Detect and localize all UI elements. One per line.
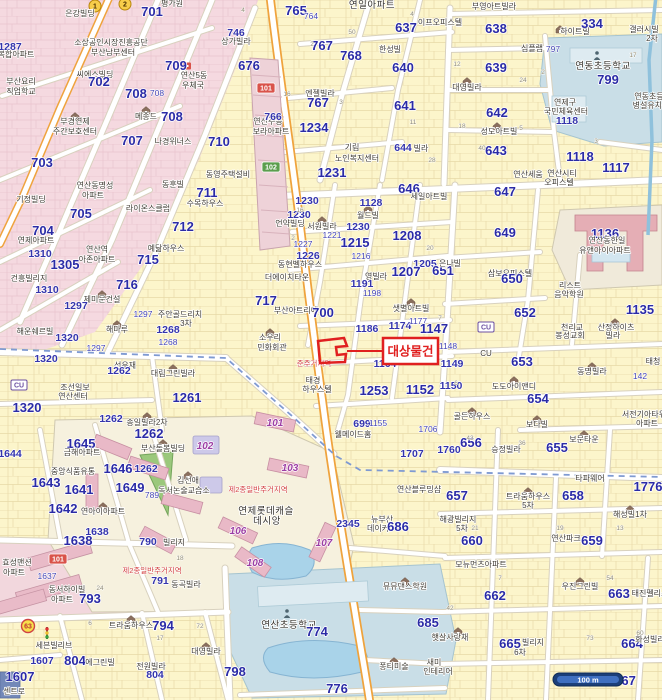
map-label: 5차 [456, 524, 468, 533]
map-label: 652 [514, 305, 536, 320]
map-label: 샛별아트빌 [393, 303, 430, 313]
map-label: 101 [267, 418, 284, 429]
map-label: 3 [339, 99, 343, 106]
map-label: 663 [608, 586, 630, 601]
map-label: 1261 [173, 390, 202, 405]
map-label: 연산동명성 [77, 180, 114, 190]
map-label: 직업학교 [6, 86, 35, 96]
map-label: 하우스텔 [302, 384, 331, 394]
map-label: 647 [494, 184, 516, 199]
map-label: 기정빌딩 [16, 194, 45, 204]
map-label: 36 [518, 440, 526, 447]
map-label: 700 [312, 305, 334, 320]
map-label: 평가원 [161, 0, 183, 8]
map-label: 부산남부센터 [91, 47, 135, 57]
map-label: 43 [466, 435, 474, 442]
map-label: 1637 [38, 571, 57, 581]
map-label: 142 [633, 371, 647, 381]
map-label: 1642 [49, 501, 78, 516]
map-label: 인테리어 [423, 666, 452, 676]
map-label: 1149 [441, 358, 464, 370]
map-label: 수목하우스 [187, 198, 224, 208]
map-label: 60 [636, 630, 644, 637]
map-label: 1320 [55, 332, 79, 344]
svg-text:101: 101 [260, 86, 272, 93]
map-label: 18 [176, 555, 184, 562]
map-label: 타파웨어 [575, 473, 604, 483]
map-label: 연제구 [554, 98, 576, 107]
map-label: 707 [121, 133, 143, 148]
map-label: 연동초등학교 [575, 61, 630, 72]
map-label: 686 [387, 519, 409, 534]
map-label: 1646 [104, 461, 133, 476]
map-label: 715 [137, 252, 159, 267]
map-label: 더에이치타운 [265, 272, 309, 282]
map-label: 태경 [306, 375, 321, 385]
map-label: 1227 [294, 239, 313, 249]
map-label: 동영주택설비 [206, 169, 250, 179]
map-label: 데이커 [367, 523, 389, 533]
map-label: 794 [152, 618, 174, 633]
map-label: 퐁티미술 [379, 661, 408, 671]
map-label: 12 [453, 61, 461, 68]
map-label: 빌라 [606, 330, 621, 340]
map-label: 644 [394, 142, 412, 154]
map-label: 웰메이드홈 [335, 429, 372, 439]
map-label: 17 [156, 635, 164, 642]
map-label: 641 [394, 98, 416, 113]
map-label: 804 [146, 669, 164, 681]
map-label: 보다빌 [526, 419, 548, 429]
map-label: 20 [426, 245, 434, 252]
map-label: 5차 [522, 501, 534, 510]
map-label: 심플랩 [521, 43, 543, 53]
map-label: 빌리지 [163, 537, 185, 547]
map-label: 보라아파트 [253, 126, 290, 136]
map-label: 1152 [406, 382, 434, 397]
map-label: 1268 [159, 337, 178, 347]
map-label: 제2종일반주거지역 [228, 484, 287, 494]
map-label: 건흥빌리지 [11, 273, 48, 283]
map-label: 보문타운 [569, 435, 598, 444]
map-label: 태진펠리스 [632, 588, 662, 598]
map-label: 1297 [134, 309, 153, 319]
map-label: 우체국 [182, 80, 204, 90]
map-label: 1649 [116, 480, 145, 495]
map-label: 1128 [360, 197, 383, 209]
map-label: 트라움하우스 [506, 491, 550, 501]
map-label: 한성빌 [379, 44, 401, 54]
map-label: 108 [247, 558, 264, 569]
map-label: 774 [306, 624, 328, 639]
map-label: 4 [241, 7, 245, 14]
map-label: 708 [150, 88, 164, 98]
map-viewport[interactable]: 1210110210163CUCU 은강빌딩평가원7011287복합아파트소상공… [0, 0, 662, 700]
map-label: 662 [484, 588, 506, 603]
map-label: 연동초등 [634, 92, 662, 101]
map-label: 리스트 [559, 281, 581, 290]
map-label: 11 [410, 119, 417, 126]
map-label: 메종드 [135, 112, 157, 121]
map-label: 모뉴먼츠아파트 [455, 559, 507, 569]
map-label: 새미 [427, 658, 442, 667]
map-label: 해광빌리지 [440, 514, 477, 524]
map-label: 연산센터 [58, 391, 87, 401]
map-label: 1155 [369, 418, 388, 428]
map-label: 6 [88, 620, 92, 627]
map-label: 7 [498, 575, 502, 582]
map-label: 650 [501, 271, 523, 286]
map-label: 트라움하우스 [109, 620, 153, 630]
annotation-label: 대상물건 [387, 344, 433, 359]
map-label: 연산세움 [513, 169, 542, 179]
svg-text:2: 2 [123, 2, 127, 9]
map-label: 790 [139, 536, 157, 548]
map-label: 은나빌 [439, 258, 461, 268]
map-label: 1262 [135, 426, 164, 441]
map-label: 1230 [346, 221, 370, 233]
map-label: 1776 [634, 479, 662, 494]
map-label: 18 [458, 123, 466, 130]
map-label: 5 [519, 125, 523, 132]
map-label: 1230 [295, 195, 319, 207]
map-label: 106 [230, 526, 247, 537]
map-label: 712 [172, 219, 194, 234]
map-label: 702 [88, 74, 110, 89]
map-label: 102 [197, 441, 214, 452]
map-label: 1118 [566, 149, 594, 164]
map-label: 데시앙 [253, 515, 281, 527]
map-label: 1760 [437, 444, 461, 456]
map-label: 107 [316, 538, 333, 549]
map-label: 2 [291, 235, 295, 242]
map-label: 2차 [646, 34, 658, 43]
map-label: 음악학원 [554, 289, 583, 299]
map-label: 부산돌봄빌딩 [141, 443, 185, 453]
map-label: 658 [562, 488, 584, 503]
map-label: 705 [70, 206, 92, 221]
map-label: 주간보호센터 [53, 126, 97, 136]
map-label: 아파트 [3, 567, 25, 577]
map-label: 685 [417, 615, 439, 630]
map-label: 상가빌라 [221, 36, 251, 46]
map-label: 1186 [356, 323, 379, 335]
map-label: 13 [616, 525, 624, 532]
map-label: 1706 [419, 424, 438, 434]
map-label: 월드빌 [357, 210, 379, 220]
map-label: 797 [546, 44, 560, 54]
map-label: 동곡빌라 [171, 579, 201, 589]
map-label: 햇살사랑채 [432, 632, 469, 642]
map-label: 세일아트빌 [411, 191, 448, 201]
svg-text:102: 102 [265, 165, 277, 172]
map-label: 노인복지센터 [335, 153, 379, 163]
map-label: 2 [310, 41, 314, 48]
map-label: 1253 [360, 383, 389, 398]
map-label: 제미문건설 [84, 294, 121, 304]
map-label: 은강빌딩 [65, 8, 94, 18]
map-label: 28 [428, 157, 436, 164]
map-label: 6차 [514, 648, 526, 657]
badge-101: 101 [49, 554, 67, 564]
map-label: 24 [96, 585, 104, 592]
map-label: 도도아이앤디 [492, 381, 536, 391]
map-label: 776 [326, 681, 348, 696]
svg-text:63: 63 [24, 624, 32, 631]
map-label: 1148 [439, 341, 458, 351]
map-label: 638 [485, 21, 507, 36]
map-label: 1320 [13, 400, 42, 415]
map-label: 아파트 [636, 418, 658, 428]
map-label: 708 [161, 109, 183, 124]
map-label: 오피스텔 [544, 178, 573, 187]
map-label: 1297 [64, 300, 88, 312]
map-label: 1641 [65, 482, 94, 497]
scale-bar: 100 m [553, 673, 623, 686]
map-label: 해마루 [106, 324, 128, 334]
map-label: 독서논술교습소 [158, 485, 210, 495]
map-label: 연산동한일 [589, 235, 626, 245]
map-label: 767 [311, 38, 333, 53]
map-label: 1297 [87, 343, 106, 353]
map-label: 73 [586, 635, 594, 642]
map-label: 뮤뮤댄스학원 [383, 581, 427, 591]
map-label: 103 [282, 463, 299, 474]
map-label: 부산요리 [6, 76, 35, 86]
map-label: 708 [125, 86, 147, 101]
map-label: 1150 [440, 380, 463, 392]
map-label: 72 [196, 623, 204, 630]
map-label: 1607 [6, 669, 35, 684]
map-label: 센트로 [3, 686, 25, 696]
map-label: 1607 [30, 655, 54, 667]
map-label: 16 [296, 207, 304, 214]
map-label: 1268 [156, 324, 180, 336]
map-label: 동명빌라 [577, 366, 607, 376]
map-label: 대영빌라 [191, 646, 221, 656]
map-label: 767 [307, 95, 329, 110]
map-label: 병설유치원 [633, 100, 662, 110]
map-label: 에그린빌 [85, 657, 114, 667]
map-label: 21 [471, 525, 479, 532]
map-label: 16 [283, 91, 291, 98]
map-label: 금해아파트 [64, 447, 101, 457]
map-label: 1147 [420, 321, 448, 336]
map-label: 1643 [32, 475, 61, 490]
map-label: 조선일보 [60, 383, 89, 392]
map-label: 791 [151, 575, 169, 587]
map-canvas[interactable]: 1210110210163CUCU 은강빌딩평가원7011287복합아파트소상공… [0, 0, 662, 700]
map-label: 804 [64, 653, 86, 668]
map-label: 승정빌라 [491, 444, 521, 454]
map-label: 김선애 [177, 475, 199, 485]
map-label: 1644 [0, 448, 22, 460]
map-label: 소상공인시장진흥공단 [74, 37, 148, 47]
map-label: 6 [454, 380, 458, 387]
map-label: 793 [79, 591, 101, 606]
map-label: 1262 [107, 365, 131, 377]
map-label: 7 [438, 315, 442, 322]
map-label: 1117 [602, 160, 630, 175]
map-label: 태청 [646, 357, 661, 366]
map-label: 660 [461, 533, 483, 548]
map-label: 부영아트빌라 [472, 1, 517, 11]
map-label: 653 [511, 354, 533, 369]
traffic-light-icon [45, 627, 48, 639]
map-label: 연아이아파트 [81, 506, 125, 516]
map-label: 우진그린빌 [562, 581, 599, 591]
map-label: 4 [410, 11, 414, 18]
badge-63: 63 [22, 620, 35, 633]
map-label: 643 [485, 143, 507, 158]
map-label: 연산파크 [551, 533, 580, 543]
map-label: 1310 [28, 248, 52, 260]
svg-text:101: 101 [52, 557, 64, 564]
map-label: 657 [446, 488, 468, 503]
map-label: 유앤아이아파트 [579, 245, 631, 255]
map-label: 3 [594, 138, 598, 145]
map-label: 봉성교회 [555, 331, 584, 340]
map-label: 2 [541, 69, 545, 76]
map-label: 동훈빌 [162, 179, 184, 189]
map-label: 이프오피스텔 [418, 17, 462, 27]
map-label: 1305 [51, 257, 80, 272]
map-label: 716 [116, 277, 138, 292]
map-label: 복합아파트 [0, 49, 34, 59]
map-label: 아파트 [82, 190, 104, 200]
map-label: 해성빌1차 [613, 509, 648, 519]
map-label: 701 [141, 4, 163, 19]
map-label: 640 [392, 60, 414, 75]
map-label: 2345 [336, 518, 360, 530]
map-label: 성도아트빌 [481, 126, 518, 136]
map-label: 710 [208, 134, 230, 149]
map-label: 세븐빌리브 [36, 640, 73, 650]
map-label: 1216 [352, 251, 371, 261]
map-label: 1221 [323, 230, 342, 240]
map-label: 효성맨션 [2, 557, 31, 567]
map-label: 1207 [392, 264, 421, 279]
map-label: 54 [606, 575, 614, 582]
map-label: 1262 [99, 413, 123, 425]
map-label: 나경위너스 [155, 136, 192, 146]
map-label: 민화회관 [257, 342, 287, 352]
map-label: 768 [340, 48, 362, 63]
map-label: CU [480, 349, 492, 358]
map-label: 637 [395, 20, 417, 35]
map-label: 676 [238, 58, 260, 73]
map-label: 3차 [180, 319, 192, 328]
map-label: 798 [224, 664, 246, 679]
map-label: 소우리 [259, 333, 281, 342]
map-label: 제2종일반주거지역 [122, 565, 181, 575]
map-label: 빌리지 [522, 637, 544, 647]
map-label: 19 [556, 525, 564, 532]
map-label: 1231 [318, 165, 347, 180]
map-label: 갤러시빌 [629, 24, 658, 34]
map-label: 655 [546, 440, 568, 455]
map-label: 주안골드리치 [158, 309, 202, 319]
map-label: 799 [597, 72, 619, 87]
map-label: 709 [165, 58, 187, 73]
map-label: 연일아파트 [349, 0, 395, 11]
svg-text:CU: CU [481, 325, 491, 332]
map-label: 1707 [400, 448, 424, 460]
map-label: 아파트 [51, 594, 73, 604]
map-label: 1320 [34, 353, 58, 365]
map-label: 703 [31, 155, 53, 170]
map-label: 654 [527, 391, 549, 406]
badge-102: 102 [262, 162, 280, 172]
map-label: 연산역 [86, 244, 108, 254]
map-label: 아존아파트 [79, 254, 116, 264]
map-label: 24 [519, 77, 527, 84]
map-label: 40 [478, 145, 486, 152]
map-label: 기림 [345, 142, 360, 152]
badge-CU: CU [11, 380, 27, 390]
map-label: 라이온스클럽 [126, 203, 170, 213]
map-label: 659 [581, 533, 603, 548]
map-label: 1638 [64, 533, 93, 548]
map-label: 해운쉐르빌 [17, 326, 54, 336]
map-label: 1310 [35, 284, 59, 296]
map-label: 1118 [556, 115, 578, 127]
map-label: 642 [486, 105, 508, 120]
map-label: 골든하우스 [454, 411, 491, 421]
map-label: 1234 [300, 120, 330, 135]
map-label: 1262 [134, 463, 158, 475]
svg-text:CU: CU [14, 383, 24, 390]
map-label: 711 [197, 185, 218, 200]
map-label: 42 [446, 605, 454, 612]
map-label: 1135 [626, 302, 654, 317]
map-label: 동현벨하우스 [278, 259, 322, 269]
map-label: 1198 [363, 288, 382, 298]
scale-bar-label: 100 m [577, 676, 599, 685]
map-label: 대영빌라 [452, 82, 482, 92]
map-label: 17 [629, 52, 637, 59]
map-label: 서전기아타워 [622, 409, 662, 419]
badge-101: 101 [257, 83, 275, 93]
map-label: 766 [264, 111, 282, 123]
badge-2: 2 [119, 0, 131, 10]
map-label: 부경연제 [60, 116, 89, 126]
map-label: 빌라 [414, 143, 429, 153]
map-label: 연산블루밍샵 [397, 484, 442, 494]
badge-CU: CU [478, 322, 494, 332]
map-label: 639 [485, 60, 507, 75]
map-label: 649 [494, 225, 516, 240]
map-label: 334 [581, 16, 603, 31]
map-label: 1215 [341, 235, 370, 250]
map-label: 1208 [393, 228, 422, 243]
map-label: 연산시티 [547, 168, 576, 178]
map-label: 789 [145, 490, 159, 500]
map-label: 764 [304, 11, 318, 21]
map-label: 대림그린빌라 [151, 368, 196, 378]
map-label: 50 [348, 29, 356, 36]
map-label: 연제아파트 [18, 235, 55, 245]
